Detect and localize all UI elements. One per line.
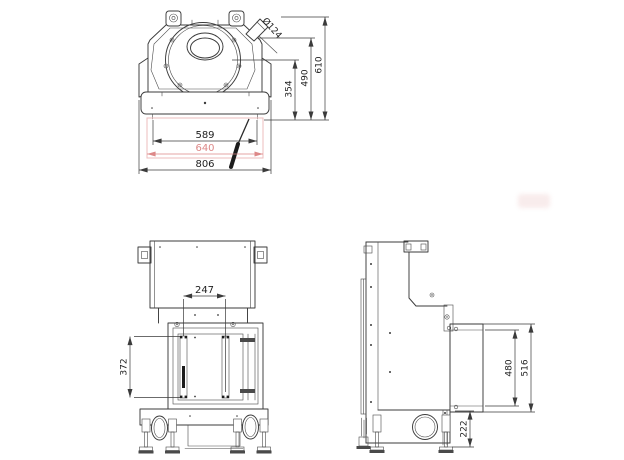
front-bar	[141, 92, 269, 119]
flue-collar	[164, 23, 241, 98]
dim-640-label: 640	[195, 143, 214, 154]
side-view: 480 516 222	[357, 241, 536, 453]
hinge-bottom	[240, 389, 255, 393]
mounting-lugs	[166, 11, 244, 26]
dim-516-label: 516	[521, 359, 531, 376]
dim-222-label: 222	[460, 420, 470, 437]
hood-panel	[150, 241, 255, 308]
side-glass-edge	[361, 279, 366, 414]
wall-brackets	[138, 247, 267, 263]
dim-372-label: 372	[120, 358, 130, 375]
dim-354-label: 354	[285, 80, 295, 97]
transport-wheels	[152, 415, 259, 440]
drawing-sheet: 589 640 806 354 490 610 Ø124	[0, 0, 624, 460]
front-view-dimensions: 247 372	[120, 285, 226, 398]
glass-window	[178, 334, 243, 400]
ring-screws	[164, 38, 241, 87]
dim-589-label: 589	[195, 130, 214, 141]
side-outline	[364, 241, 453, 443]
dim-480-label: 480	[505, 359, 515, 376]
hinge-top	[240, 338, 255, 342]
body-upper	[159, 308, 248, 323]
combustion-air-duct	[413, 415, 438, 440]
dim-247-label: 247	[195, 285, 214, 296]
door-frame	[168, 322, 263, 409]
side-screws	[370, 263, 434, 403]
adjustable-feet-side	[357, 415, 454, 453]
rear-panel-box	[450, 324, 483, 412]
door-left-strip	[180, 336, 187, 398]
dim-806-label: 806	[195, 159, 214, 170]
front-view: 247 372	[120, 241, 272, 454]
door-handle	[231, 119, 249, 167]
watermark-smudge	[518, 194, 550, 208]
door-right-strip	[222, 336, 255, 398]
fireplace-technical-drawing: 589 640 806 354 490 610 Ø124	[0, 0, 624, 460]
door-handle-front	[182, 366, 185, 388]
top-plan-view: 589 640 806 354 490 610 Ø124	[139, 11, 329, 174]
dim-490-label: 490	[301, 69, 311, 86]
side-view-dimensions: 480 516 222	[452, 324, 535, 447]
dim-610-label: 610	[315, 56, 325, 73]
